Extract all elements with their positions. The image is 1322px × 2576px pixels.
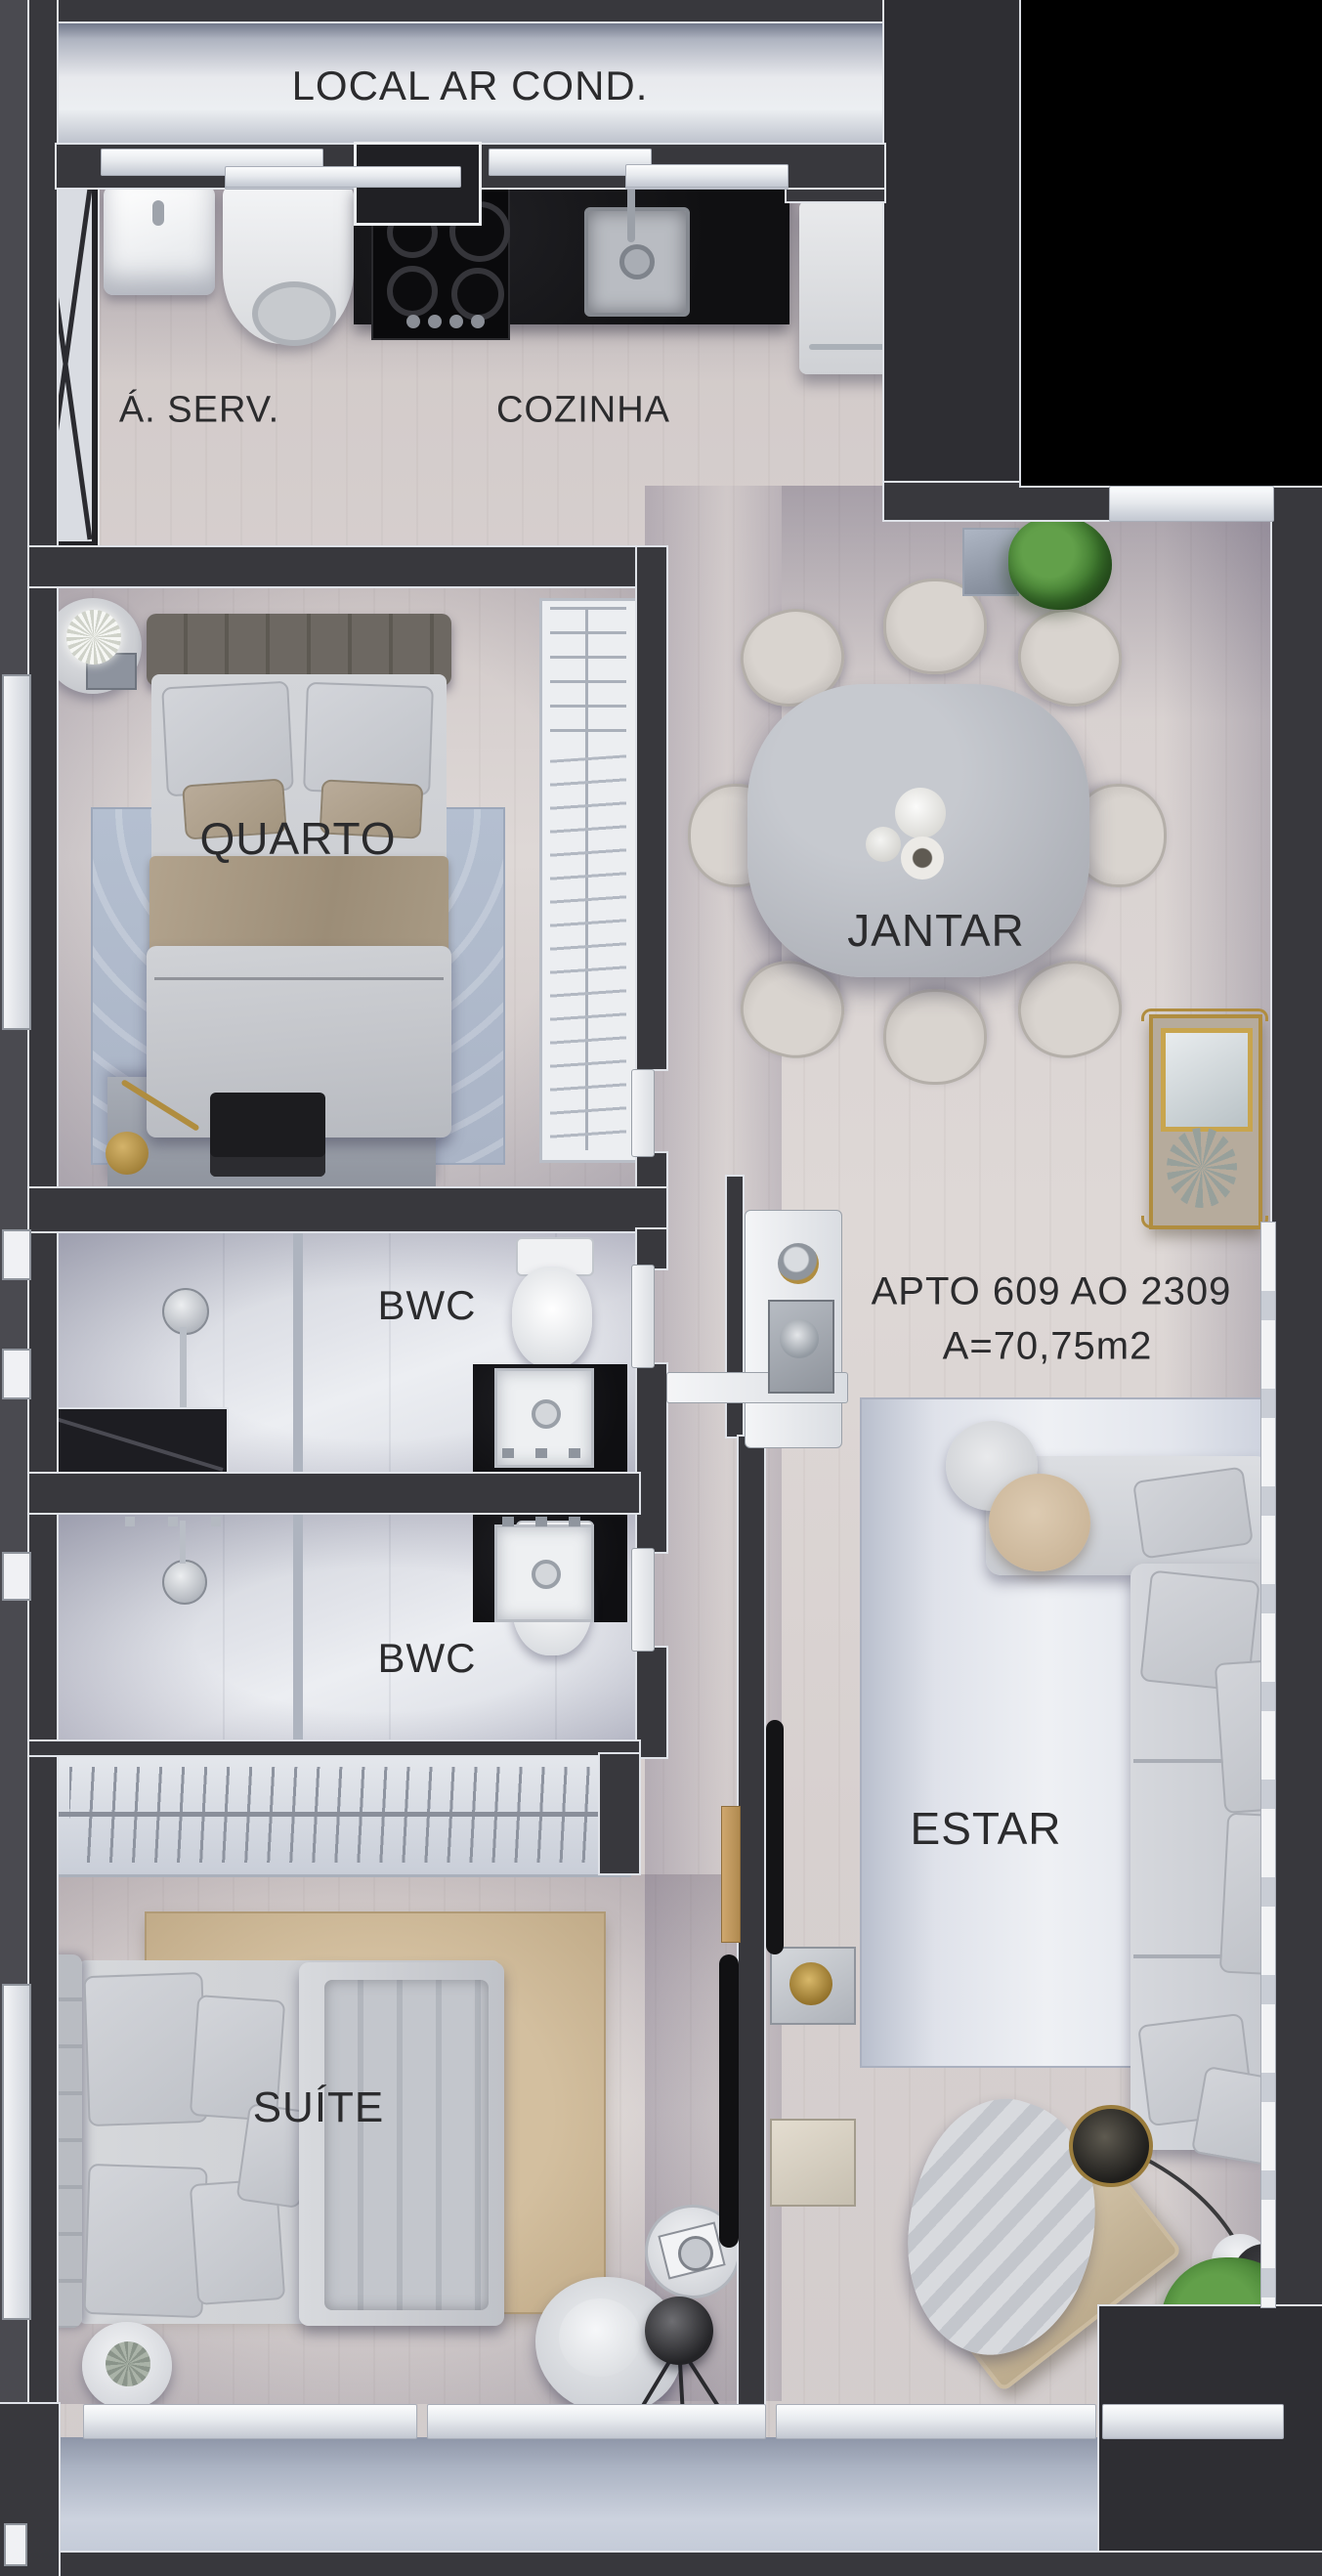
- wall-left: [29, 0, 57, 2560]
- suite-closet: [41, 1754, 631, 1877]
- wall-bottom: [0, 2553, 1322, 2576]
- wall-quarto-bottom: [29, 1188, 666, 1231]
- stove-knob: [406, 315, 420, 328]
- desk-lamp-shade: [106, 1132, 149, 1175]
- wardrobe-hangers: [550, 754, 626, 1150]
- bwc1-shaft-box: [39, 1409, 227, 1476]
- magazine-cup: [678, 2236, 713, 2271]
- balcony-floor-surface: [57, 2437, 1282, 2555]
- typewriter: [210, 1093, 325, 1177]
- bwc2-shower-stem: [180, 1521, 186, 1564]
- bwc2-shower-glass: [293, 1513, 303, 1743]
- suite-tv: [719, 1954, 739, 2248]
- table-lamp-flower: [66, 610, 121, 665]
- sill-overlay-2: [225, 166, 461, 188]
- table-decor-cup: [866, 827, 901, 862]
- bar-cart: [1149, 1014, 1262, 1229]
- estar-floor-lamp: [1069, 2105, 1153, 2187]
- label-bwc1: BWC: [378, 1282, 477, 1329]
- burner: [387, 266, 438, 317]
- suite-pillow-1: [83, 1972, 207, 2126]
- window-top-right: [1109, 486, 1274, 522]
- suite-quilt: [324, 1980, 489, 2310]
- estar-window-curtain: [1260, 1222, 1276, 2308]
- balcony-window-small: [4, 2523, 27, 2566]
- bwc2-robe-hooks: [125, 1517, 223, 1526]
- label-cozinha: COZINHA: [496, 390, 670, 432]
- wall-bwc-divider: [29, 1474, 639, 1513]
- tv-partition-wall: [739, 1437, 764, 2404]
- bwc1-basin-taps: [502, 1448, 580, 1458]
- media-knob-gold: [789, 1962, 832, 2005]
- bwc1-vent-2: [2, 1349, 31, 1399]
- wall-quarto-right-upper: [637, 547, 666, 1069]
- bar-cart-plant-dry: [1167, 1128, 1237, 1208]
- kitchen-drain: [619, 244, 655, 279]
- label-area-servico: Á. SERV.: [119, 390, 279, 432]
- balcony-sill-1: [83, 2404, 417, 2439]
- estar-tv: [766, 1720, 784, 1954]
- label-quarto: QUARTO: [199, 812, 396, 865]
- suite-armchair-cushion: [559, 2298, 641, 2377]
- wall-kitchen-jantar: [884, 483, 1109, 520]
- wall-bwc-right-1: [637, 1229, 666, 1268]
- wall-bottom-right-block: [1099, 2306, 1322, 2576]
- bwc2-door-leaf: [631, 1548, 655, 1652]
- quarto-door-leaf: [631, 1069, 655, 1157]
- quarto-wardrobe: [539, 598, 643, 1163]
- bwc1-basin-drain: [532, 1399, 561, 1429]
- wall-closet-stub: [600, 1754, 639, 1873]
- wall-right: [1272, 486, 1322, 2576]
- bwc2-shower-head: [162, 1560, 207, 1605]
- suite-window: [2, 1984, 31, 2320]
- suite-floor-lamp: [645, 2297, 713, 2365]
- media-console: [770, 2119, 856, 2207]
- bwc2-vent: [2, 1552, 31, 1601]
- quarto-duvet-seam: [154, 977, 444, 980]
- bwc2-basin-taps: [502, 1517, 580, 1526]
- bwc1-door-leaf: [631, 1265, 655, 1368]
- stove-knob: [471, 315, 485, 328]
- label-estar: ESTAR: [911, 1802, 1062, 1855]
- burner: [451, 268, 504, 321]
- suite-table-plant: [106, 2341, 150, 2386]
- stove-knob: [449, 315, 463, 328]
- unit-area: A=70,75m2: [943, 1325, 1153, 1369]
- balcony-sill-2: [427, 2404, 766, 2439]
- bar-cart-mirror: [1161, 1028, 1253, 1132]
- quarto-window: [2, 674, 31, 1030]
- label-local-ar-cond: LOCAL AR COND.: [292, 63, 649, 109]
- washer-drum: [252, 281, 336, 346]
- wall-bwc2-bottom: [29, 1741, 639, 1755]
- entry-peephole: [778, 1243, 819, 1284]
- quarto-pillow-right: [303, 682, 434, 795]
- sofa-pillow-1: [1132, 1466, 1254, 1559]
- floor-plan: LOCAL AR COND. Á. SERV. COZINHA: [0, 0, 1322, 2576]
- suite-wood-door: [721, 1806, 741, 1943]
- table-decor-plate: [901, 837, 944, 880]
- bwc1-vent: [2, 1229, 31, 1280]
- wall-top: [29, 0, 1021, 21]
- table-decor-bowl: [895, 788, 946, 838]
- label-jantar: JANTAR: [847, 904, 1025, 957]
- wall-bwc-right-2: [637, 1364, 666, 1552]
- sill-overlay-4: [625, 164, 789, 188]
- dining-chair: [883, 989, 987, 1085]
- jantar-plant: [1008, 516, 1112, 610]
- bar-cart-handle-top: [1141, 1009, 1268, 1021]
- bwc1-shower-stem: [180, 1327, 187, 1415]
- bwc2-basin-drain: [532, 1560, 561, 1589]
- closet-rail: [54, 1812, 618, 1817]
- bar-cart-handle-bottom: [1141, 1216, 1268, 1228]
- balcony-sill-4: [1102, 2404, 1284, 2439]
- neighbor-void: [1021, 0, 1322, 486]
- suite-pillow-2: [83, 2164, 207, 2318]
- wardrobe-shelves: [550, 607, 626, 753]
- bwc1-toilet-bowl: [512, 1267, 592, 1368]
- entry-lock-knob: [780, 1319, 819, 1358]
- label-bwc2: BWC: [378, 1635, 477, 1682]
- coffee-table-tan: [989, 1474, 1090, 1571]
- stove-knob: [428, 315, 442, 328]
- laundry-faucet: [152, 200, 164, 226]
- wall-top-right-block: [884, 0, 1021, 520]
- wall-bwc-right-3: [637, 1648, 666, 1757]
- balcony-sill-3: [776, 2404, 1096, 2439]
- label-suite: SUÍTE: [253, 2083, 385, 2132]
- wall-kitchen-quarto: [29, 547, 645, 586]
- kitchen-faucet: [627, 184, 635, 242]
- bwc1-shower-glass: [293, 1229, 303, 1474]
- unit-number: APTO 609 AO 2309: [872, 1270, 1232, 1314]
